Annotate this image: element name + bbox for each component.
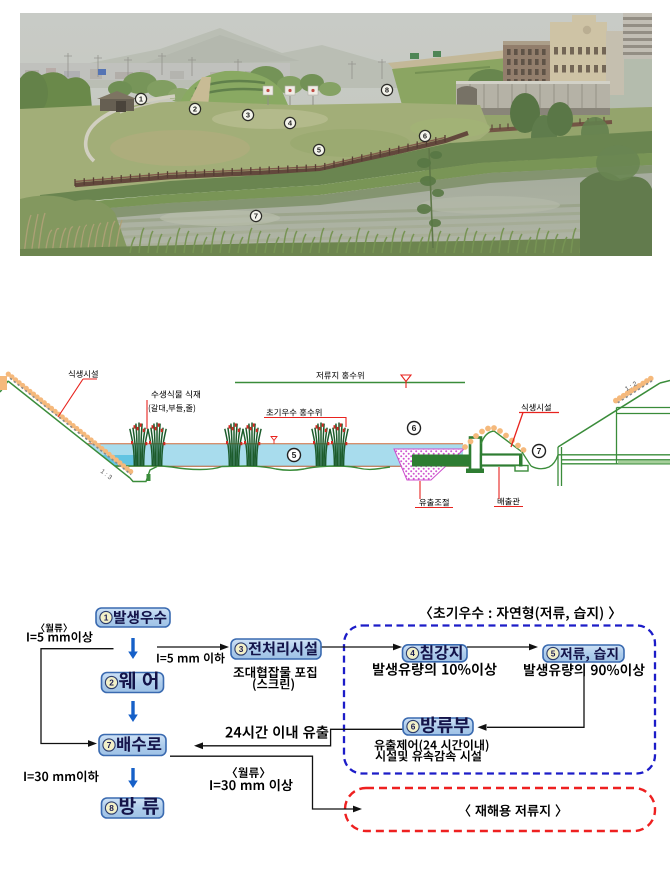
svg-text:7: 7 [537, 446, 542, 456]
svg-text:3: 3 [246, 111, 250, 120]
svg-text:7: 7 [254, 212, 258, 221]
svg-text:3: 3 [239, 644, 244, 654]
svg-text:1 : 3: 1 : 3 [99, 468, 114, 482]
svg-text:7: 7 [107, 740, 112, 750]
svg-text:2: 2 [193, 105, 197, 114]
svg-text:6: 6 [412, 423, 417, 433]
svg-text:5: 5 [317, 146, 321, 155]
svg-text:8: 8 [109, 803, 114, 813]
svg-text:6: 6 [423, 132, 427, 141]
svg-text:8: 8 [385, 86, 389, 95]
svg-text:6: 6 [411, 721, 416, 731]
svg-text:1: 1 [104, 612, 109, 622]
svg-text:2: 2 [109, 677, 114, 687]
svg-text:4: 4 [410, 648, 415, 658]
svg-text:5: 5 [551, 648, 556, 658]
svg-text:1: 1 [139, 95, 143, 104]
svg-text:5: 5 [292, 450, 297, 460]
